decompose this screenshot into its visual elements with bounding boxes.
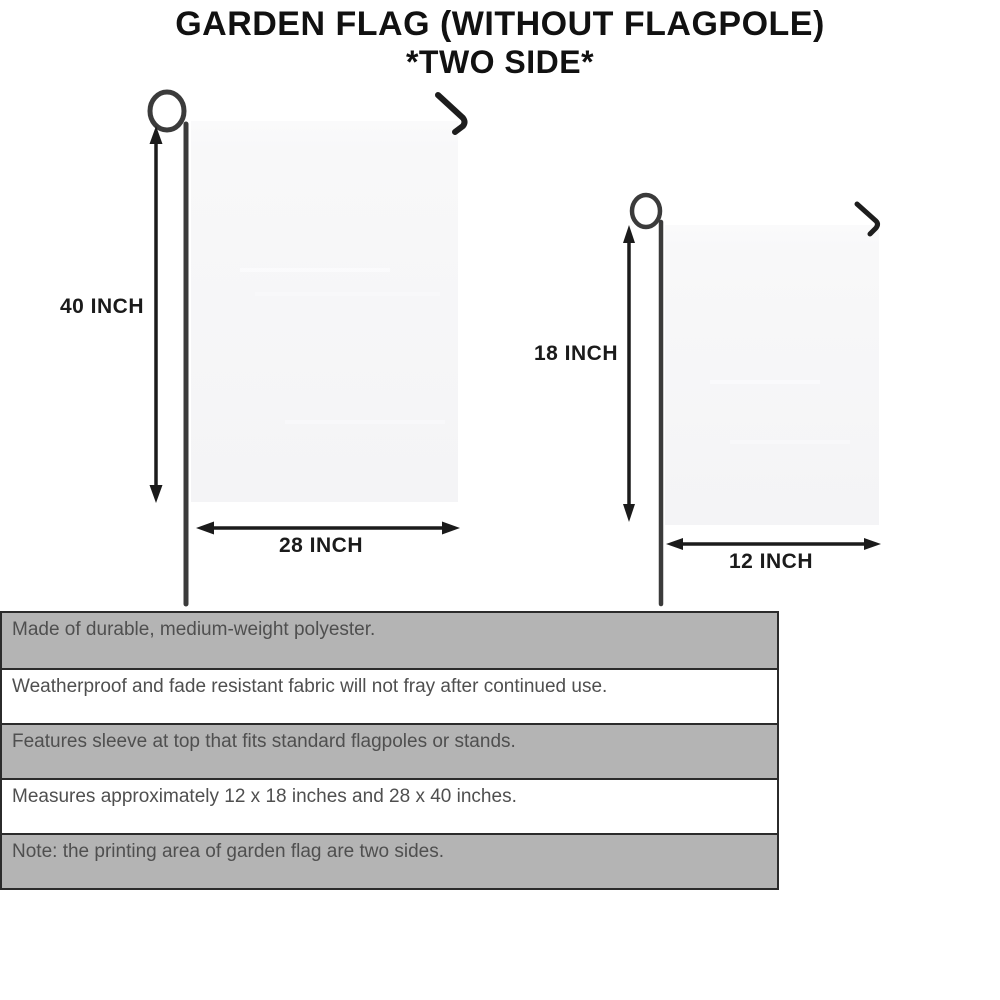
small-flag-width-arrow	[666, 538, 881, 550]
large-flag-height-label: 40 INCH	[42, 295, 162, 319]
small-flag-height-arrow	[623, 225, 635, 522]
small-flag-fabric-sheen	[730, 440, 850, 444]
large-flag-fabric-sheen	[240, 268, 390, 272]
large-flag-width-label: 28 INCH	[261, 534, 381, 558]
large-flag-width-arrow	[196, 522, 460, 535]
arrowhead-left	[196, 522, 214, 535]
feature-table: Made of durable, medium-weight polyester…	[0, 611, 779, 890]
large-flag-diagram	[150, 92, 465, 604]
large-flag-fabric-sheen	[285, 420, 445, 424]
large-flagpole-loop	[150, 92, 184, 130]
arrowhead-right	[442, 522, 460, 535]
feature-row: Made of durable, medium-weight polyester…	[2, 613, 777, 668]
small-flag-fabric-sheen	[710, 380, 820, 384]
arrowhead-down	[150, 485, 163, 503]
arrowhead-up	[623, 225, 635, 243]
feature-row: Weatherproof and fade resistant fabric w…	[2, 668, 777, 723]
arrowhead-left	[666, 538, 683, 550]
small-flag-height-label: 18 INCH	[516, 342, 636, 366]
arrowhead-right	[864, 538, 881, 550]
garden-flag-infographic: GARDEN FLAG (WITHOUT FLAGPOLE) *TWO SIDE…	[0, 0, 1000, 1000]
feature-row: Features sleeve at top that fits standar…	[2, 723, 777, 778]
small-flag-diagram	[623, 195, 881, 604]
small-flag-width-label: 12 INCH	[711, 550, 831, 574]
feature-row: Note: the printing area of garden flag a…	[2, 833, 777, 888]
small-flag-canvas	[665, 225, 879, 525]
large-flag-canvas	[191, 121, 458, 502]
large-flag-fabric-sheen	[255, 292, 440, 296]
arrowhead-down	[623, 504, 635, 522]
small-flagpole-loop	[632, 195, 660, 227]
feature-row: Measures approximately 12 x 18 inches an…	[2, 778, 777, 833]
